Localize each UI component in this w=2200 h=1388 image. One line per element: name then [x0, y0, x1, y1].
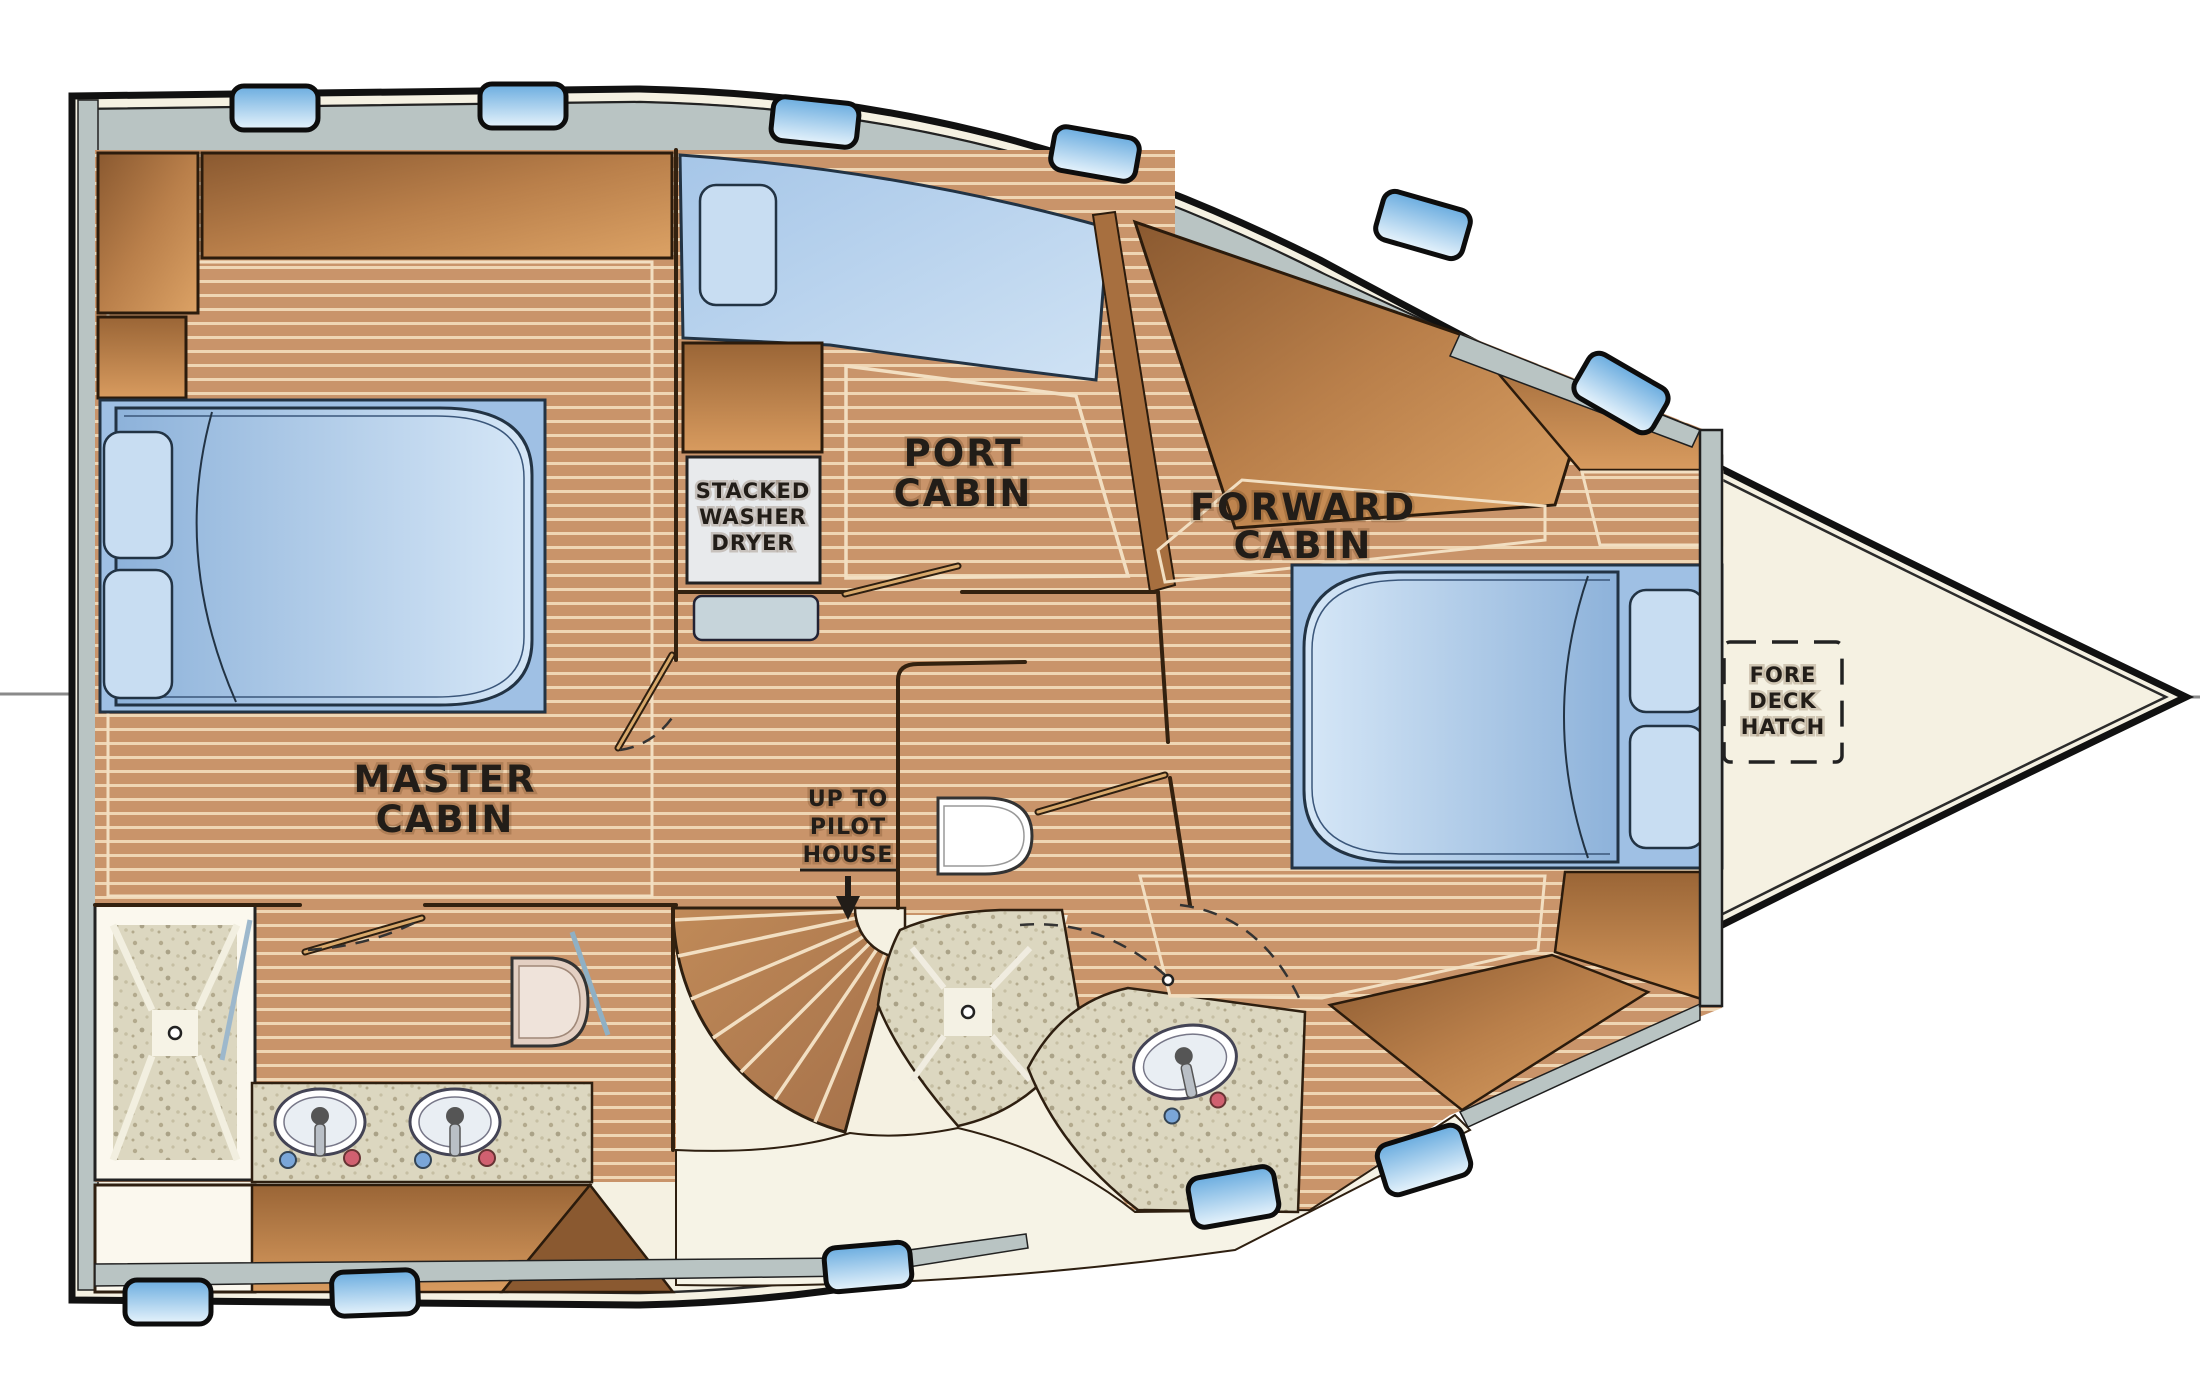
porthole-window	[770, 96, 860, 149]
forward-bulkhead	[1700, 430, 1722, 1006]
master-bed	[100, 400, 545, 712]
forward-cabin-label: CABIN	[1234, 524, 1373, 567]
master-cabin-label: MASTER	[353, 758, 536, 801]
hot-tap-icon	[479, 1150, 495, 1166]
washer-label: STACKED	[696, 479, 811, 503]
pillow	[104, 570, 172, 698]
wardrobe-cabinet	[98, 153, 198, 313]
wardrobe-cabinet	[98, 317, 186, 398]
door-hinge	[1163, 975, 1173, 985]
cold-tap-icon	[1165, 1109, 1180, 1124]
pilot-house-label: HOUSE	[803, 843, 894, 868]
forward-cabin-bed	[1292, 565, 1722, 868]
hot-tap-icon	[344, 1150, 360, 1166]
washer-label: DRYER	[711, 531, 794, 555]
overhead-cabinet	[202, 153, 672, 258]
cabinet	[683, 343, 822, 452]
shower-drain-icon	[962, 1006, 974, 1018]
pilot-house-label: PILOT	[810, 815, 886, 840]
fore-deck-hatch-label: FORE	[1750, 663, 1817, 687]
master-shower	[95, 905, 255, 1180]
pillow	[700, 185, 776, 305]
pillow	[1630, 726, 1704, 848]
mattress	[116, 408, 532, 705]
porthole-window	[125, 1280, 211, 1324]
mattress	[1304, 572, 1618, 862]
porthole-window	[232, 86, 318, 130]
washer-label: WASHER	[699, 505, 807, 529]
stairwell-landing-hatch	[694, 596, 818, 640]
faucet	[450, 1124, 460, 1156]
pillow	[104, 432, 172, 558]
floor-plan-canvas: MASTER CABIN PORT CABIN FORWARD CABIN ST…	[0, 0, 2200, 1388]
pilot-house-label: UP TO	[808, 787, 888, 812]
porthole-window	[480, 84, 566, 128]
cold-tap-icon	[415, 1152, 431, 1168]
faucet	[315, 1124, 325, 1156]
shower-drain-icon	[169, 1027, 181, 1039]
porthole-window	[823, 1241, 913, 1292]
sink	[275, 1089, 365, 1168]
boat-floor-plan: MASTER CABIN PORT CABIN FORWARD CABIN ST…	[0, 0, 2200, 1388]
cold-tap-icon	[280, 1152, 296, 1168]
master-cabin-label: CABIN	[376, 798, 515, 841]
toilet	[938, 798, 1032, 874]
port-cabin-label: PORT	[904, 432, 1023, 475]
pillow	[1630, 590, 1704, 712]
sink	[410, 1089, 500, 1168]
forward-cabin-label: FORWARD	[1190, 486, 1416, 529]
hot-tap-icon	[1211, 1093, 1226, 1108]
fore-deck-hatch-label: HATCH	[1741, 715, 1826, 739]
port-cabin-label: CABIN	[894, 472, 1033, 515]
porthole-window	[331, 1270, 418, 1317]
fore-deck-hatch-label: DECK	[1749, 689, 1816, 713]
